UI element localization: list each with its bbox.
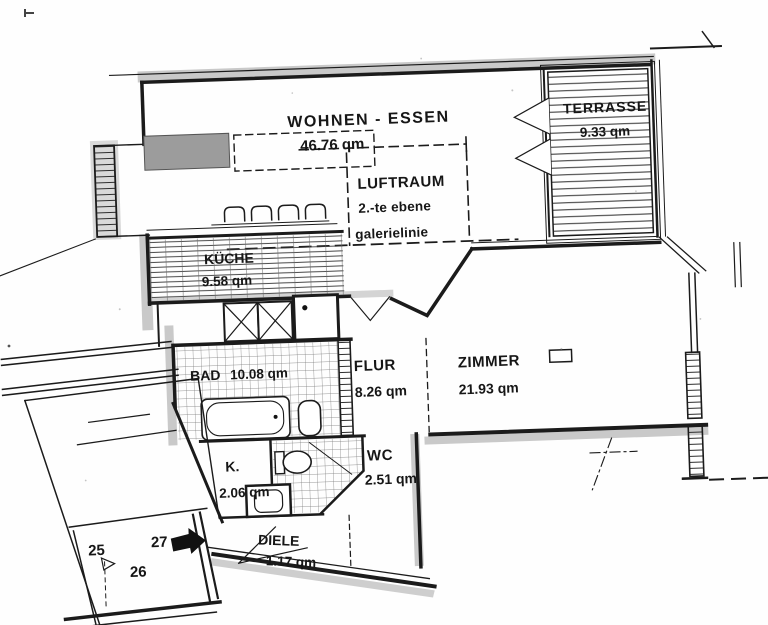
label-luftraum-note1: 2.-te ebene <box>358 198 431 216</box>
label-wohnen-essen: WOHNEN - ESSEN <box>287 109 450 132</box>
terrace-decking <box>548 69 654 236</box>
label-kueche-area: 9.58 qm <box>202 273 253 290</box>
terrace-door-swing-icon <box>514 98 550 135</box>
label-kueche: KÜCHE <box>204 250 254 268</box>
label-wc-area: 2.51 qm <box>365 470 418 488</box>
terrace-door-swing-icon <box>515 139 551 176</box>
plan-rotated-group: WOHNEN - ESSEN 46.76 qm LUFTRAUM 2.-te e… <box>0 30 768 625</box>
terrace <box>512 60 665 244</box>
label-terrasse: TERRASSE <box>563 98 648 117</box>
label-parking-27: 27 <box>151 534 168 552</box>
label-flur: FLUR <box>354 357 397 375</box>
chairs <box>224 204 325 222</box>
label-flur-area: 8.26 qm <box>354 382 407 400</box>
floor-plan-page: WOHNEN - ESSEN 46.76 qm LUFTRAUM 2.-te e… <box>0 0 768 625</box>
label-parking-25: 25 <box>88 542 105 560</box>
stove-icon <box>293 295 339 341</box>
toilet-icon <box>275 451 312 474</box>
label-wc: WC <box>367 447 394 465</box>
window-left <box>94 144 149 237</box>
label-bad-area: 10.08 qm <box>230 365 288 382</box>
label-bad: BAD <box>190 367 221 384</box>
door-swing-icon <box>351 297 390 321</box>
hall-room-walls <box>390 233 768 568</box>
label-kammer-area: 2.06 qm <box>219 484 270 501</box>
label-wohnen-essen-area: 46.76 qm <box>300 136 365 155</box>
small-triangle-mark <box>101 558 114 570</box>
sink-icon <box>298 400 321 436</box>
label-terrasse-area: 9.33 qm <box>580 123 631 140</box>
label-parking-26: 26 <box>130 563 147 581</box>
bath-wall-strip <box>338 339 353 435</box>
label-diele-area: 1.17 qm <box>266 553 317 570</box>
bathtub-icon <box>201 396 290 440</box>
label-luftraum: LUFTRAUM <box>357 173 445 193</box>
kitchen <box>147 222 391 346</box>
label-zimmer-area: 21.93 qm <box>458 379 518 397</box>
label-luftraum-note2: galerielinie <box>355 224 429 242</box>
label-zimmer: ZIMMER <box>458 352 521 371</box>
room-symbol <box>549 349 571 362</box>
scan-artifact-mark <box>8 9 34 347</box>
label-diele: DIELE <box>258 532 300 549</box>
kitchen-hatch <box>149 233 344 301</box>
floor-plan-drawing: WOHNEN - ESSEN 46.76 qm LUFTRAUM 2.-te e… <box>0 0 768 625</box>
kitchen-island <box>144 133 230 170</box>
label-kammer: K. <box>225 458 240 474</box>
